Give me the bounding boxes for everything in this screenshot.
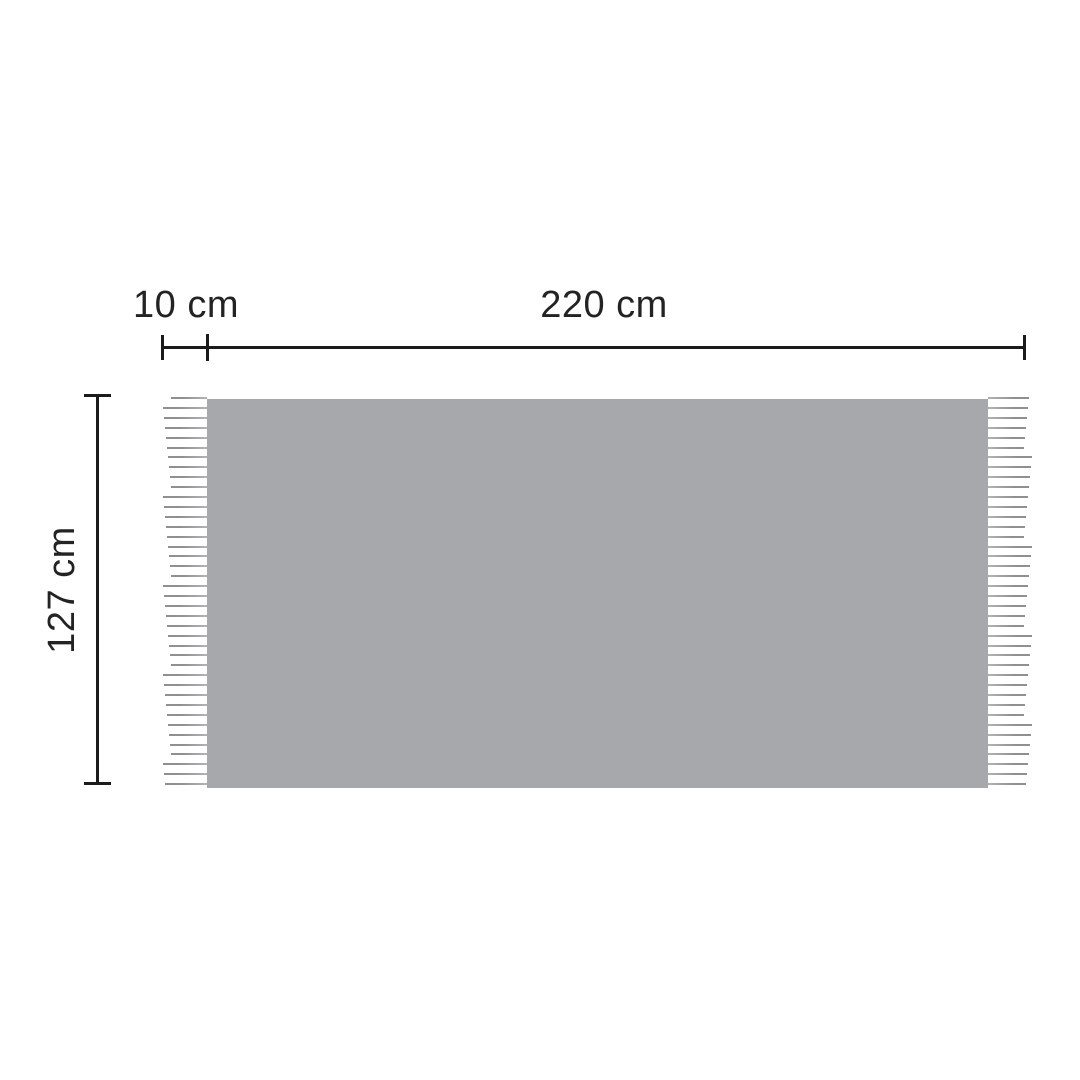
fringe-line bbox=[165, 427, 207, 429]
fringe-line bbox=[988, 546, 1032, 548]
fringe-line bbox=[164, 773, 207, 775]
fringe-line bbox=[165, 783, 207, 785]
fringe-line bbox=[988, 654, 1030, 656]
fringe-line bbox=[988, 447, 1024, 449]
fringe-line bbox=[171, 753, 207, 755]
fringe-line bbox=[988, 417, 1027, 419]
fringe-line bbox=[988, 724, 1032, 726]
fringe-line bbox=[988, 496, 1028, 498]
blanket-fringe-left bbox=[163, 397, 207, 787]
fringe-line bbox=[988, 773, 1027, 775]
fringe-line bbox=[169, 734, 207, 736]
blanket-fringe-right bbox=[988, 397, 1032, 787]
fringe-line bbox=[988, 595, 1027, 597]
fringe-line bbox=[170, 744, 207, 746]
horizontal-dimension-tick-left bbox=[161, 335, 164, 360]
fringe-line bbox=[988, 714, 1024, 716]
fringe-line bbox=[163, 407, 207, 409]
body-width-label: 220 cm bbox=[504, 283, 704, 327]
fringe-line bbox=[988, 734, 1031, 736]
fringe-line bbox=[988, 753, 1029, 755]
fringe-line bbox=[988, 684, 1027, 686]
fringe-line bbox=[166, 526, 207, 528]
fringe-line bbox=[988, 744, 1030, 746]
fringe-line bbox=[988, 486, 1029, 488]
fringe-line bbox=[169, 466, 207, 468]
fringe-line bbox=[167, 714, 207, 716]
fringe-line bbox=[166, 615, 207, 617]
fringe-line bbox=[163, 763, 207, 765]
vertical-dimension-tick-bottom bbox=[84, 782, 111, 785]
blanket-body bbox=[207, 399, 988, 788]
fringe-line bbox=[988, 506, 1027, 508]
fringe-line bbox=[988, 407, 1028, 409]
fringe-line bbox=[988, 555, 1031, 557]
fringe-line bbox=[988, 526, 1025, 528]
fringe-line bbox=[171, 397, 207, 399]
fringe-line bbox=[988, 427, 1026, 429]
fringe-line bbox=[988, 476, 1030, 478]
fringe-line bbox=[170, 476, 207, 478]
fringe-line bbox=[168, 724, 207, 726]
fringe-line bbox=[164, 684, 207, 686]
fringe-line bbox=[165, 516, 207, 518]
fringe-line bbox=[166, 704, 207, 706]
fringe-line bbox=[170, 565, 207, 567]
fringe-line bbox=[988, 456, 1032, 458]
fringe-line bbox=[988, 575, 1029, 577]
fringe-line bbox=[167, 447, 207, 449]
fringe-line bbox=[988, 565, 1030, 567]
fringe-line bbox=[988, 763, 1028, 765]
fringe-line bbox=[165, 694, 207, 696]
fringe-line bbox=[988, 585, 1028, 587]
fringe-line bbox=[165, 605, 207, 607]
fringe-line bbox=[988, 664, 1029, 666]
horizontal-dimension-tick-right bbox=[1023, 335, 1026, 360]
vertical-dimension-line bbox=[96, 395, 99, 784]
fringe-line bbox=[164, 417, 207, 419]
fringe-width-label: 10 cm bbox=[124, 283, 248, 327]
fringe-line bbox=[164, 506, 207, 508]
fringe-line bbox=[988, 615, 1025, 617]
fringe-line bbox=[171, 486, 207, 488]
dimension-diagram: 10 cm 220 cm 127 cm bbox=[0, 0, 1080, 1080]
fringe-line bbox=[988, 694, 1026, 696]
fringe-line bbox=[988, 645, 1031, 647]
fringe-line bbox=[169, 645, 207, 647]
fringe-line bbox=[988, 536, 1024, 538]
fringe-line bbox=[167, 625, 207, 627]
fringe-line bbox=[171, 664, 207, 666]
fringe-line bbox=[164, 595, 207, 597]
fringe-line bbox=[168, 456, 207, 458]
fringe-line bbox=[168, 635, 207, 637]
fringe-line bbox=[988, 704, 1025, 706]
fringe-line bbox=[988, 437, 1025, 439]
horizontal-dimension-line bbox=[162, 346, 1026, 349]
fringe-line bbox=[988, 516, 1026, 518]
horizontal-dimension-tick-middle bbox=[206, 334, 209, 361]
fringe-line bbox=[163, 674, 207, 676]
fringe-line bbox=[166, 437, 207, 439]
fringe-line bbox=[163, 585, 207, 587]
vertical-dimension-tick-top bbox=[84, 394, 111, 397]
fringe-line bbox=[171, 575, 207, 577]
fringe-line bbox=[169, 555, 207, 557]
fringe-line bbox=[988, 605, 1026, 607]
fringe-line bbox=[167, 536, 207, 538]
fringe-line bbox=[988, 635, 1032, 637]
fringe-line bbox=[988, 783, 1026, 785]
fringe-line bbox=[988, 625, 1024, 627]
fringe-line bbox=[988, 674, 1028, 676]
fringe-line bbox=[170, 654, 207, 656]
fringe-line bbox=[988, 466, 1031, 468]
fringe-line bbox=[168, 546, 207, 548]
fringe-line bbox=[988, 397, 1029, 399]
fringe-line bbox=[163, 496, 207, 498]
